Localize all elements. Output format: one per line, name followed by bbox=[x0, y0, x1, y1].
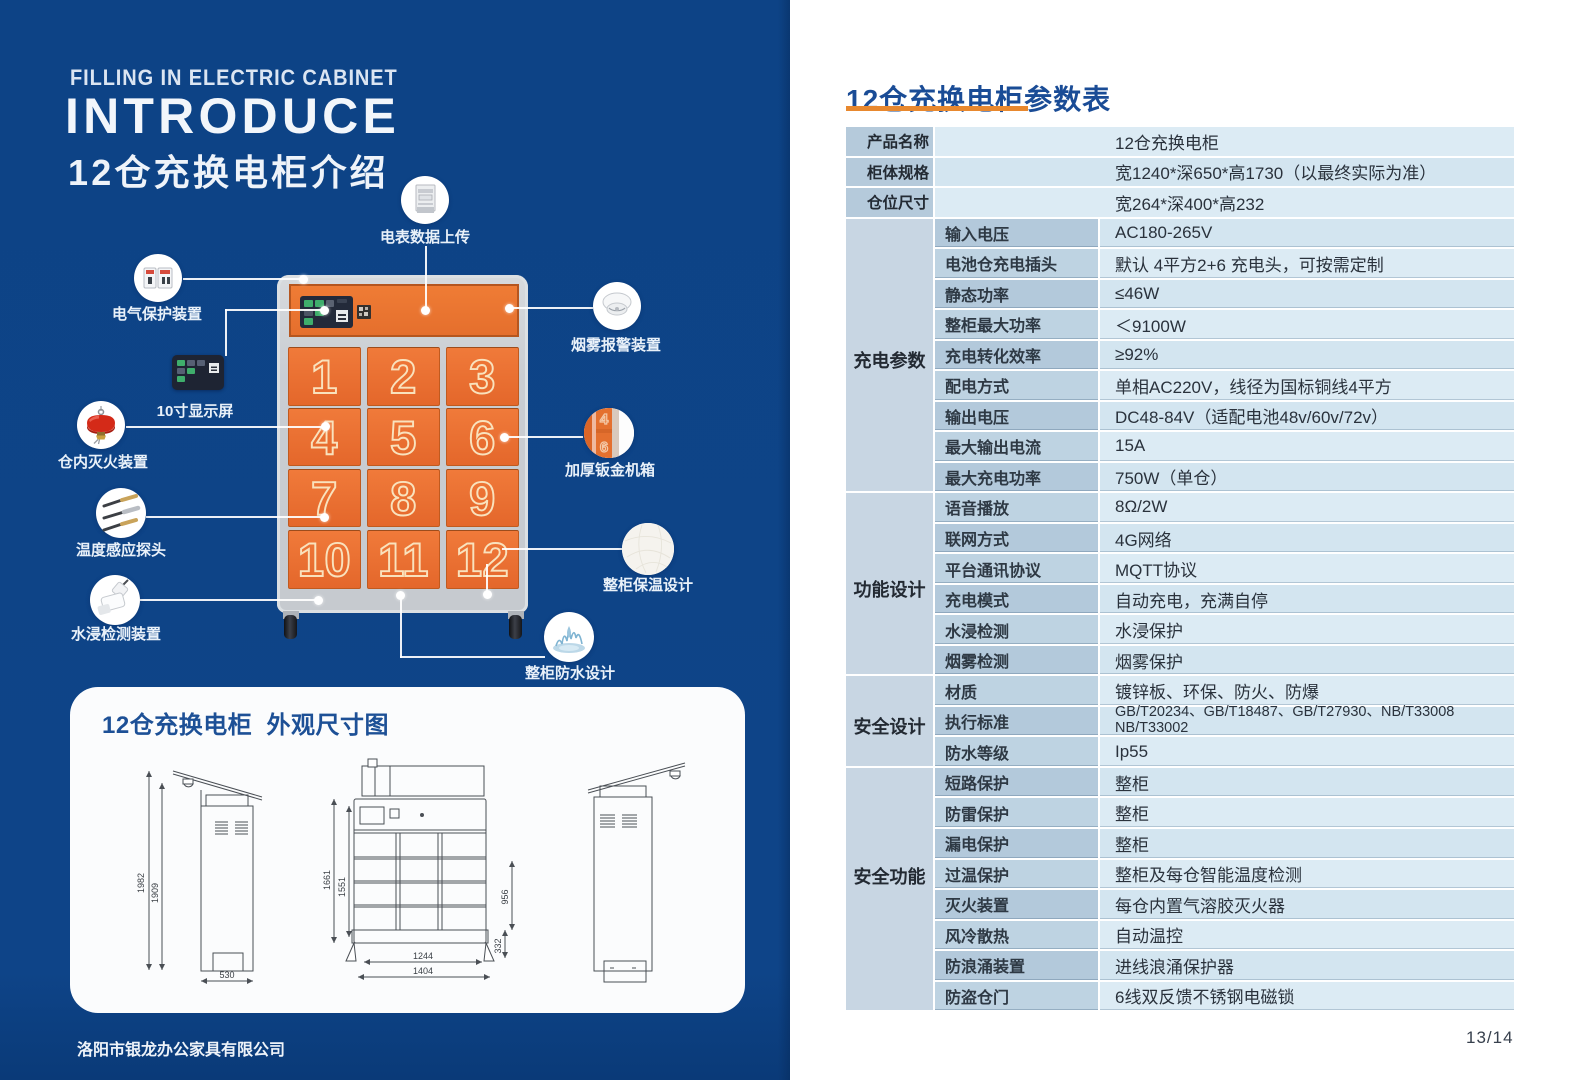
svg-text:4: 4 bbox=[600, 411, 609, 428]
svg-text:332: 332 bbox=[493, 938, 503, 953]
svg-text:1982: 1982 bbox=[136, 873, 146, 893]
svg-text:1909: 1909 bbox=[150, 883, 160, 903]
svg-text:1404: 1404 bbox=[413, 966, 433, 976]
svg-text:6: 6 bbox=[600, 439, 608, 456]
svg-text:1244: 1244 bbox=[413, 951, 433, 961]
svg-text:956: 956 bbox=[500, 889, 510, 904]
svg-text:1661: 1661 bbox=[322, 870, 332, 890]
svg-text:1551: 1551 bbox=[337, 877, 347, 897]
svg-text:530: 530 bbox=[219, 970, 234, 980]
